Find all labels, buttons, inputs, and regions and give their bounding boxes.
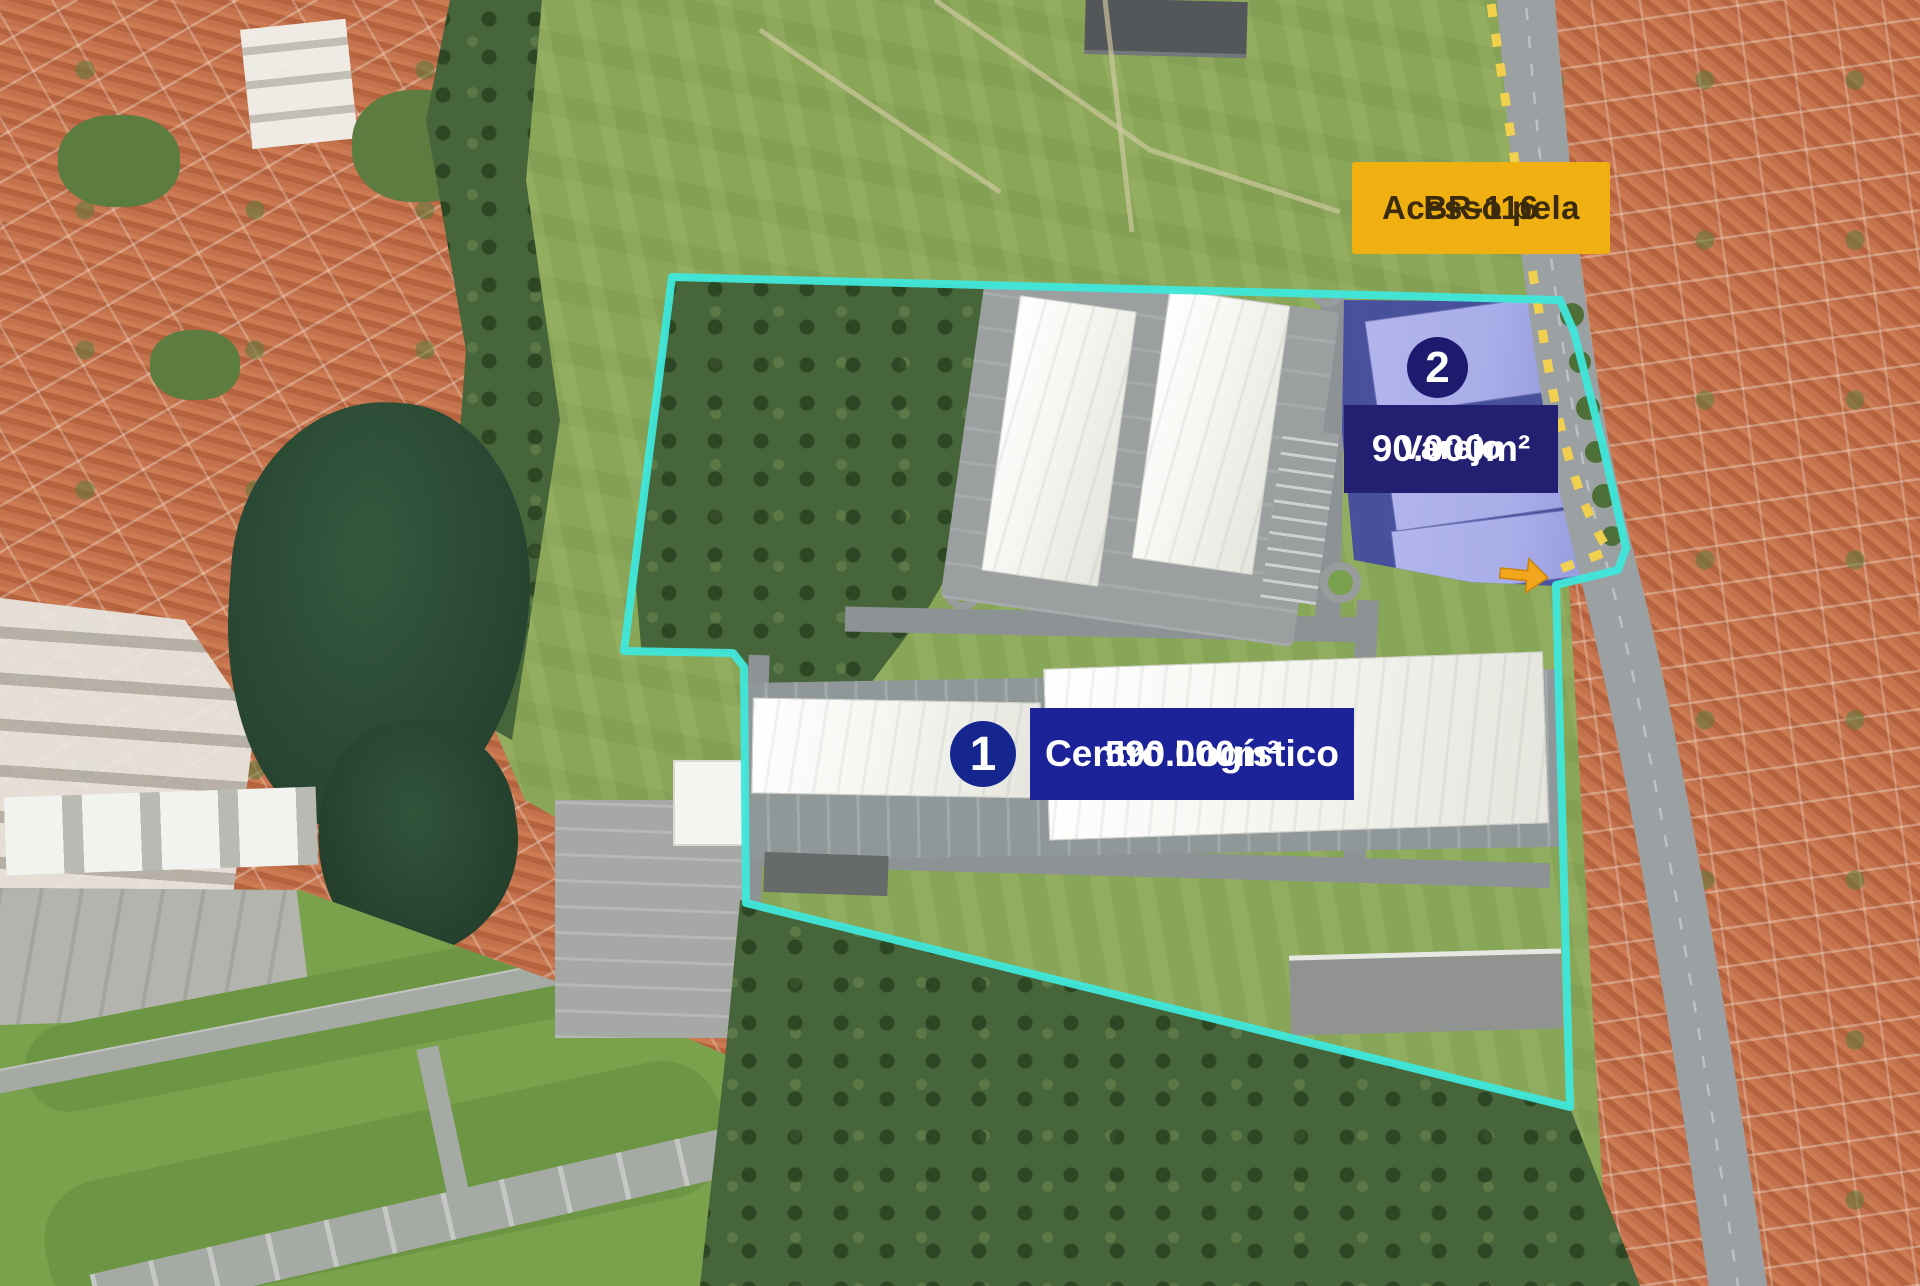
varejo-label: Varejo 90.000m² — [1344, 405, 1558, 493]
existing-building-southeast — [1289, 948, 1563, 1035]
industrial-building-north — [1084, 0, 1247, 58]
aerial-site-map: Acesso pela BR-116 2 Varejo 90.000m² 1 C… — [0, 0, 1920, 1286]
centro-logistico-label: Centro Logístico 590.000m² — [1030, 708, 1354, 800]
facility-west-building — [673, 760, 749, 846]
airport-hangars — [4, 787, 319, 876]
service-sheds — [763, 852, 888, 896]
marker-2: 2 — [1407, 337, 1468, 398]
marker-1-number: 1 — [970, 727, 997, 782]
industrial-sheds-northwest — [240, 19, 358, 149]
roundabout — [1320, 562, 1361, 603]
access-label-line2: BR-116 — [1424, 187, 1539, 229]
access-label: Acesso pela BR-116 — [1352, 162, 1610, 254]
marker-1: 1 — [950, 721, 1016, 787]
varejo-area: 90.000m² — [1372, 429, 1530, 470]
facility-west — [555, 758, 755, 1043]
park-patch — [150, 330, 240, 400]
retail-building — [1364, 292, 1587, 417]
park-patch — [58, 115, 180, 207]
marker-2-number: 2 — [1425, 343, 1449, 393]
centro-area: 590.000m² — [1105, 734, 1279, 774]
